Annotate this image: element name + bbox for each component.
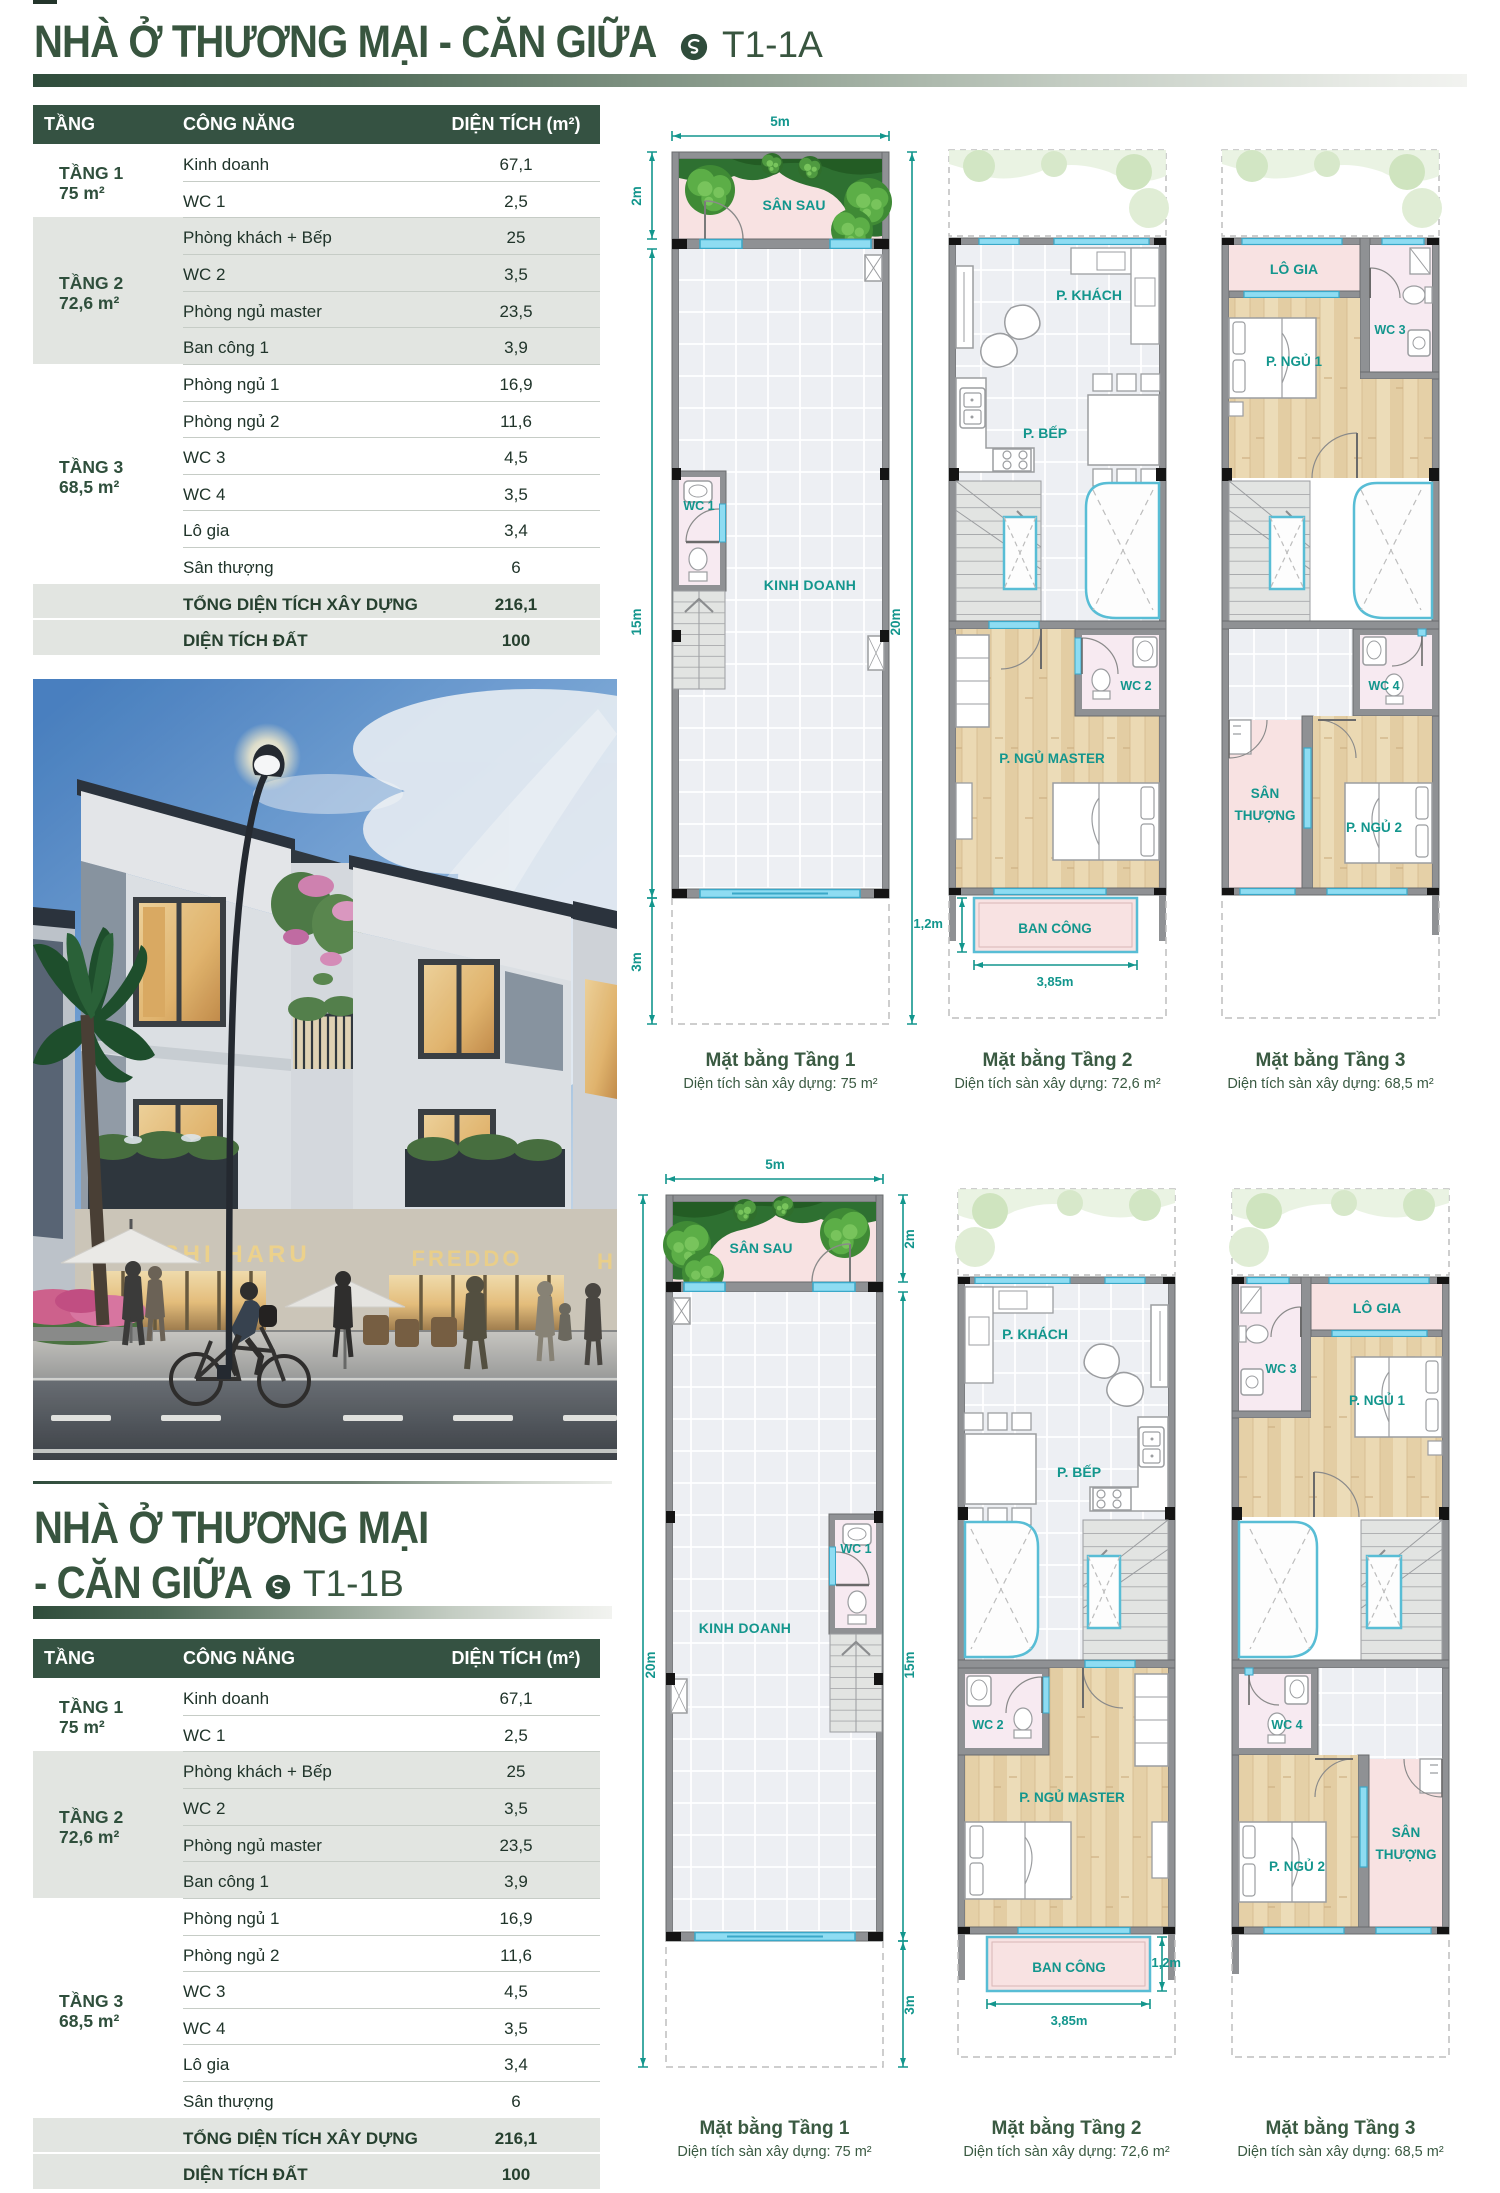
svg-text:BAN CÔNG: BAN CÔNG (1032, 1960, 1106, 1975)
svg-text:P. NGỦ MASTER: P. NGỦ MASTER (1019, 1790, 1125, 1805)
svg-text:THƯỢNG: THƯỢNG (1376, 1847, 1437, 1862)
svg-text:P. NGỦ 1: P. NGỦ 1 (1266, 354, 1323, 369)
svg-text:SÂN SAU: SÂN SAU (729, 1239, 792, 1256)
svg-text:P. KHÁCH: P. KHÁCH (1002, 1326, 1068, 1342)
svg-text:3,85m: 3,85m (1051, 2013, 1088, 2028)
svg-text:5m: 5m (765, 1157, 785, 1172)
svg-text:SÂN SAU: SÂN SAU (762, 196, 825, 213)
svg-text:WC 1: WC 1 (840, 1542, 871, 1556)
svg-text:20m: 20m (643, 1651, 658, 1678)
svg-text:P. KHÁCH: P. KHÁCH (1056, 287, 1122, 303)
svg-text:3m: 3m (629, 952, 644, 972)
svg-text:P. NGỦ 2: P. NGỦ 2 (1346, 820, 1402, 835)
svg-text:SÂN: SÂN (1251, 786, 1280, 801)
svg-text:WC 4: WC 4 (1271, 1718, 1302, 1732)
svg-text:1,2m: 1,2m (1151, 1955, 1181, 1970)
svg-text:BAN CÔNG: BAN CÔNG (1018, 921, 1092, 936)
svg-text:WC 1: WC 1 (683, 499, 714, 513)
svg-text:WC 3: WC 3 (1265, 1362, 1296, 1376)
svg-text:KINH DOANH: KINH DOANH (764, 577, 856, 593)
svg-text:WC 3: WC 3 (1374, 323, 1405, 337)
svg-text:20m: 20m (888, 608, 903, 635)
svg-text:LÔ GIA: LÔ GIA (1270, 260, 1318, 277)
svg-text:15m: 15m (902, 1651, 917, 1678)
svg-text:3m: 3m (902, 1995, 917, 2015)
svg-text:5m: 5m (770, 114, 790, 129)
svg-text:15m: 15m (629, 608, 644, 635)
svg-text:P. NGỦ 1: P. NGỦ 1 (1349, 1393, 1406, 1408)
svg-text:THƯỢNG: THƯỢNG (1235, 808, 1296, 823)
svg-text:P. BẾP: P. BẾP (1023, 425, 1067, 441)
svg-text:P. BẾP: P. BẾP (1057, 1464, 1101, 1480)
svg-text:WC 2: WC 2 (1120, 679, 1151, 693)
svg-text:2m: 2m (629, 186, 644, 206)
svg-text:WC 4: WC 4 (1368, 679, 1399, 693)
svg-text:2m: 2m (902, 1229, 917, 1249)
svg-text:P. NGỦ 2: P. NGỦ 2 (1269, 1859, 1325, 1874)
svg-text:1,2m: 1,2m (913, 916, 943, 931)
svg-text:P. NGỦ MASTER: P. NGỦ MASTER (999, 751, 1105, 766)
svg-text:WC 2: WC 2 (972, 1718, 1003, 1732)
svg-text:KINH DOANH: KINH DOANH (699, 1620, 791, 1636)
svg-text:LÔ GIA: LÔ GIA (1353, 1299, 1401, 1316)
svg-text:SÂN: SÂN (1392, 1825, 1421, 1840)
svg-text:3,85m: 3,85m (1037, 974, 1074, 989)
